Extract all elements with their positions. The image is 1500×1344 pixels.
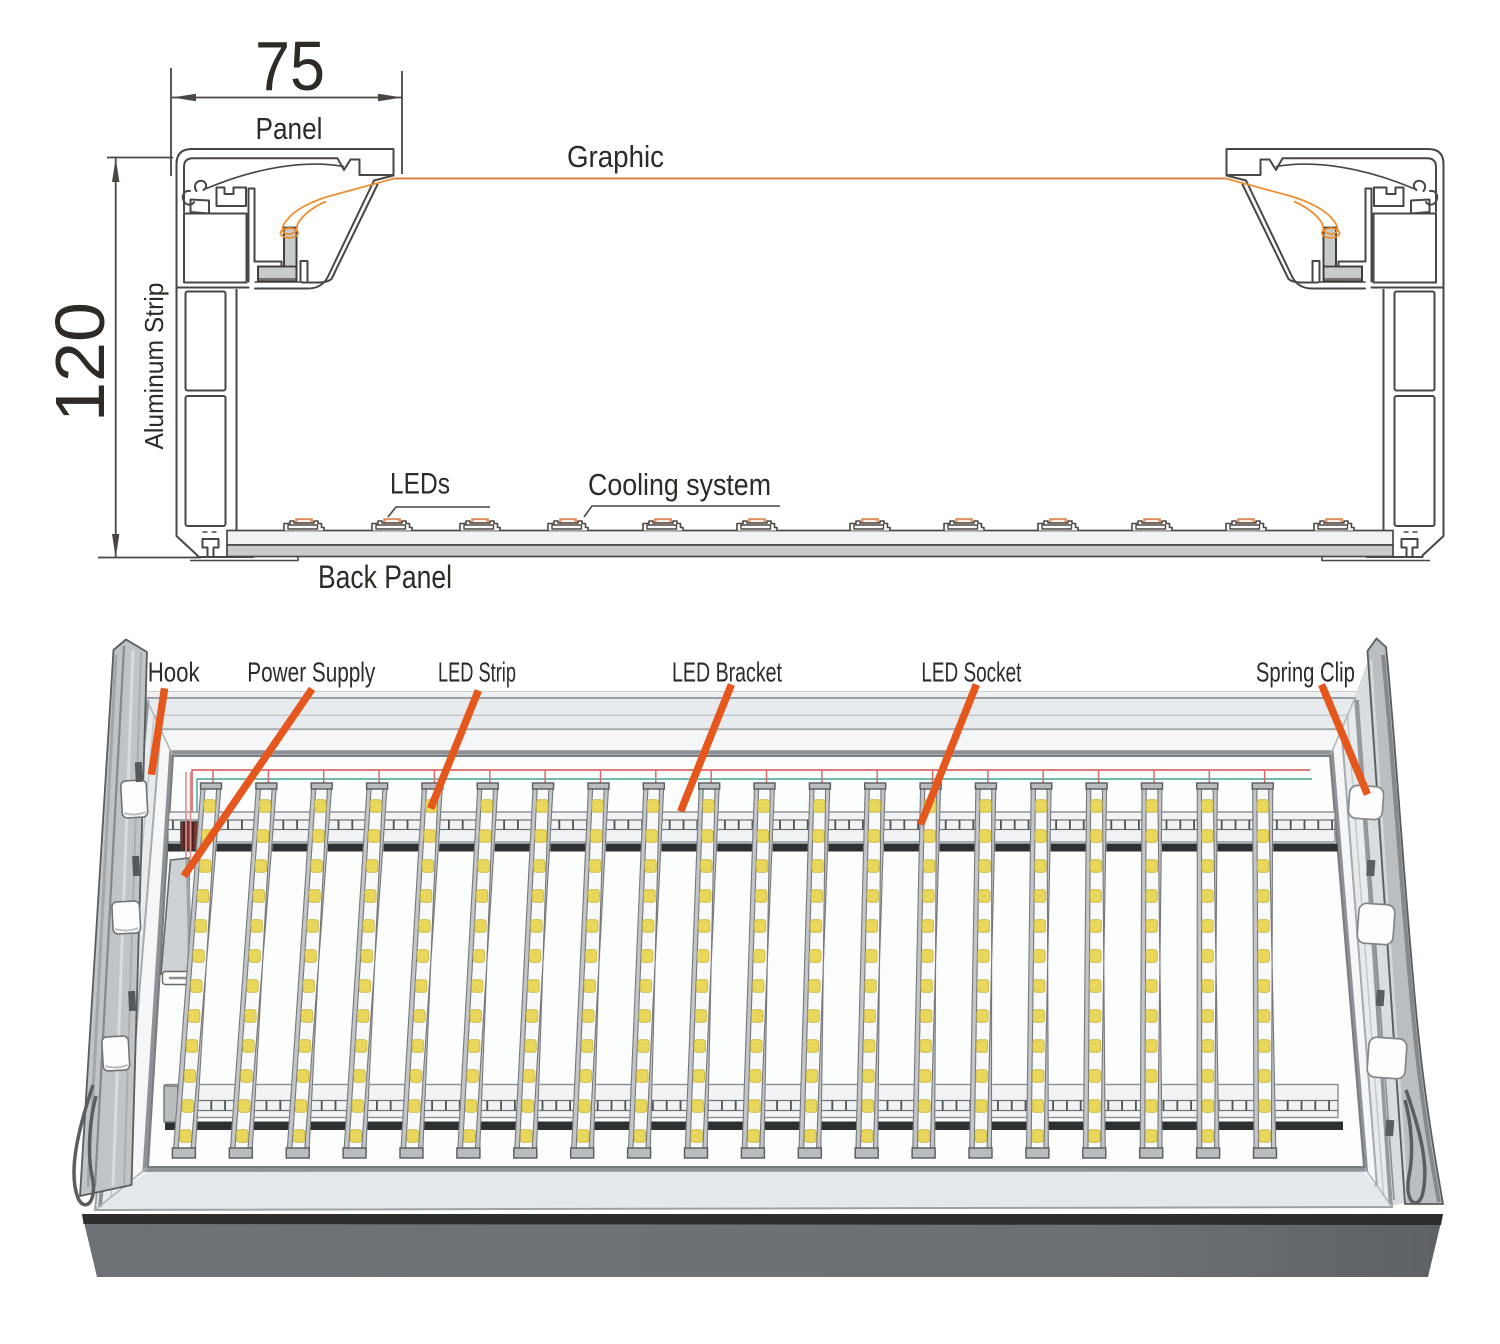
svg-text:120: 120 [41, 302, 119, 422]
svg-text:Graphic: Graphic [567, 139, 664, 174]
svg-text:75: 75 [255, 27, 325, 105]
svg-text:LEDs: LEDs [390, 468, 450, 501]
svg-text:LED Bracket: LED Bracket [672, 657, 782, 688]
svg-text:Aluminum Strip: Aluminum Strip [139, 283, 169, 450]
svg-text:Hook: Hook [148, 657, 201, 688]
svg-text:LED Socket: LED Socket [921, 657, 1021, 688]
svg-text:Power Supply: Power Supply [247, 657, 375, 688]
svg-text:Back Panel: Back Panel [318, 559, 452, 595]
svg-text:Spring Clip: Spring Clip [1256, 657, 1355, 688]
svg-text:Cooling system: Cooling system [588, 467, 771, 502]
svg-text:LED Strip: LED Strip [438, 657, 516, 688]
svg-text:Panel: Panel [256, 111, 323, 146]
